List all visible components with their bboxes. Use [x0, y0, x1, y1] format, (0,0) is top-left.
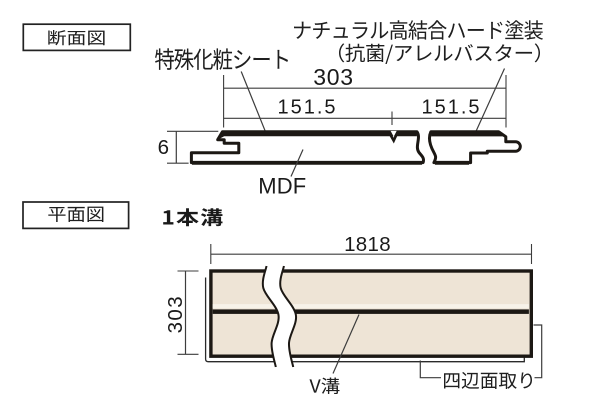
svg-text:MDF: MDF — [258, 173, 306, 198]
svg-text:1818: 1818 — [344, 233, 391, 256]
svg-text:303: 303 — [164, 295, 187, 333]
svg-text:151.5: 151.5 — [421, 97, 481, 119]
svg-text:6: 6 — [158, 136, 169, 159]
svg-text:151.5: 151.5 — [277, 97, 337, 119]
svg-text:303: 303 — [313, 64, 353, 90]
